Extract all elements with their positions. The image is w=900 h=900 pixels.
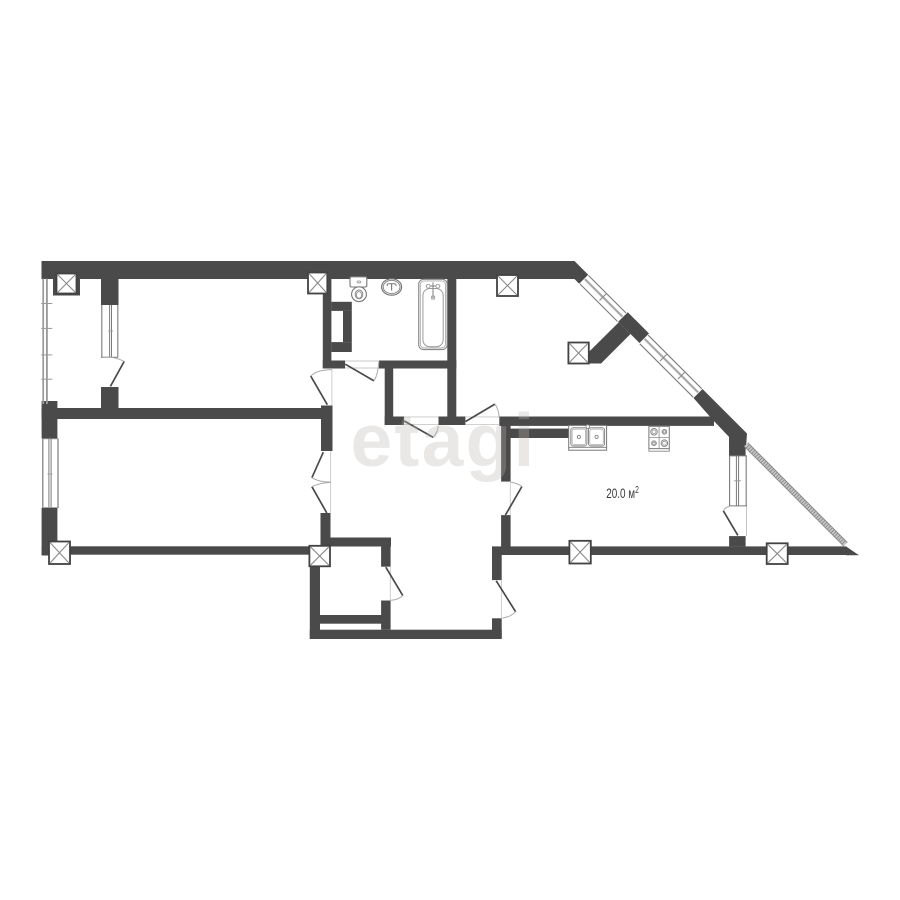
svg-text:etagi: etagi	[351, 398, 537, 482]
svg-text:20.0 м2: 20.0 м2	[606, 484, 639, 501]
